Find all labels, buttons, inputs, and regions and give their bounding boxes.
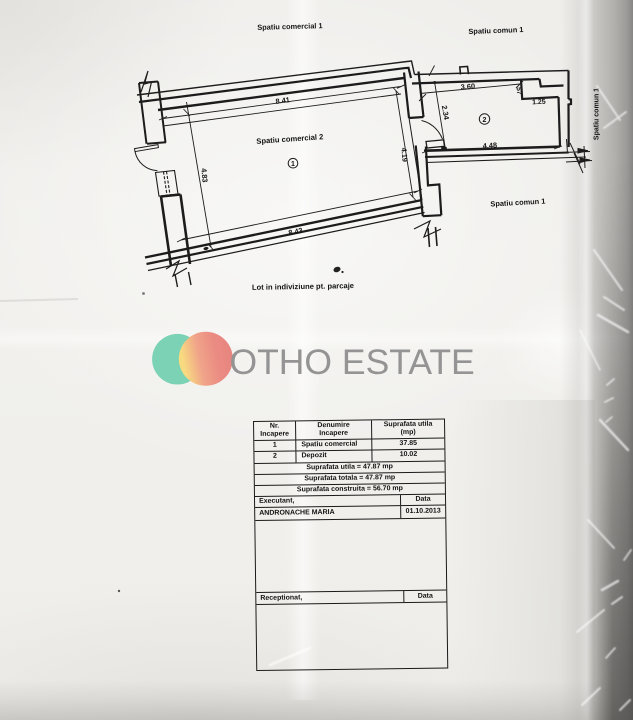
svg-text:Lot in indiviziune pt. parcaje: Lot in indiviziune pt. parcaje	[252, 281, 354, 292]
svg-text:2.34: 2.34	[440, 105, 452, 122]
svg-text:57: 57	[515, 87, 523, 95]
svg-text:Spatiu comun 1: Spatiu comun 1	[594, 88, 601, 140]
svg-text:Spatiu comercial 2: Spatiu comercial 2	[256, 132, 324, 146]
svg-text:Spatiu comercial 1: Spatiu comercial 1	[257, 21, 323, 32]
svg-text:1: 1	[291, 161, 295, 168]
svg-text:4.83: 4.83	[199, 168, 209, 183]
svg-text:1.25: 1.25	[532, 99, 546, 107]
svg-text:2: 2	[483, 117, 487, 124]
svg-text:3.60: 3.60	[460, 82, 475, 92]
svg-text:OTHO ESTATE: OTHO ESTATE	[230, 342, 475, 382]
svg-text:4.19: 4.19	[399, 147, 409, 162]
svg-text:8.43: 8.43	[288, 226, 304, 238]
svg-text:8.41: 8.41	[275, 95, 290, 106]
svg-text:Spatiu comun 1: Spatiu comun 1	[490, 197, 545, 209]
svg-text:Spatiu comun 1: Spatiu comun 1	[468, 25, 523, 36]
svg-text:4.48: 4.48	[482, 141, 497, 151]
